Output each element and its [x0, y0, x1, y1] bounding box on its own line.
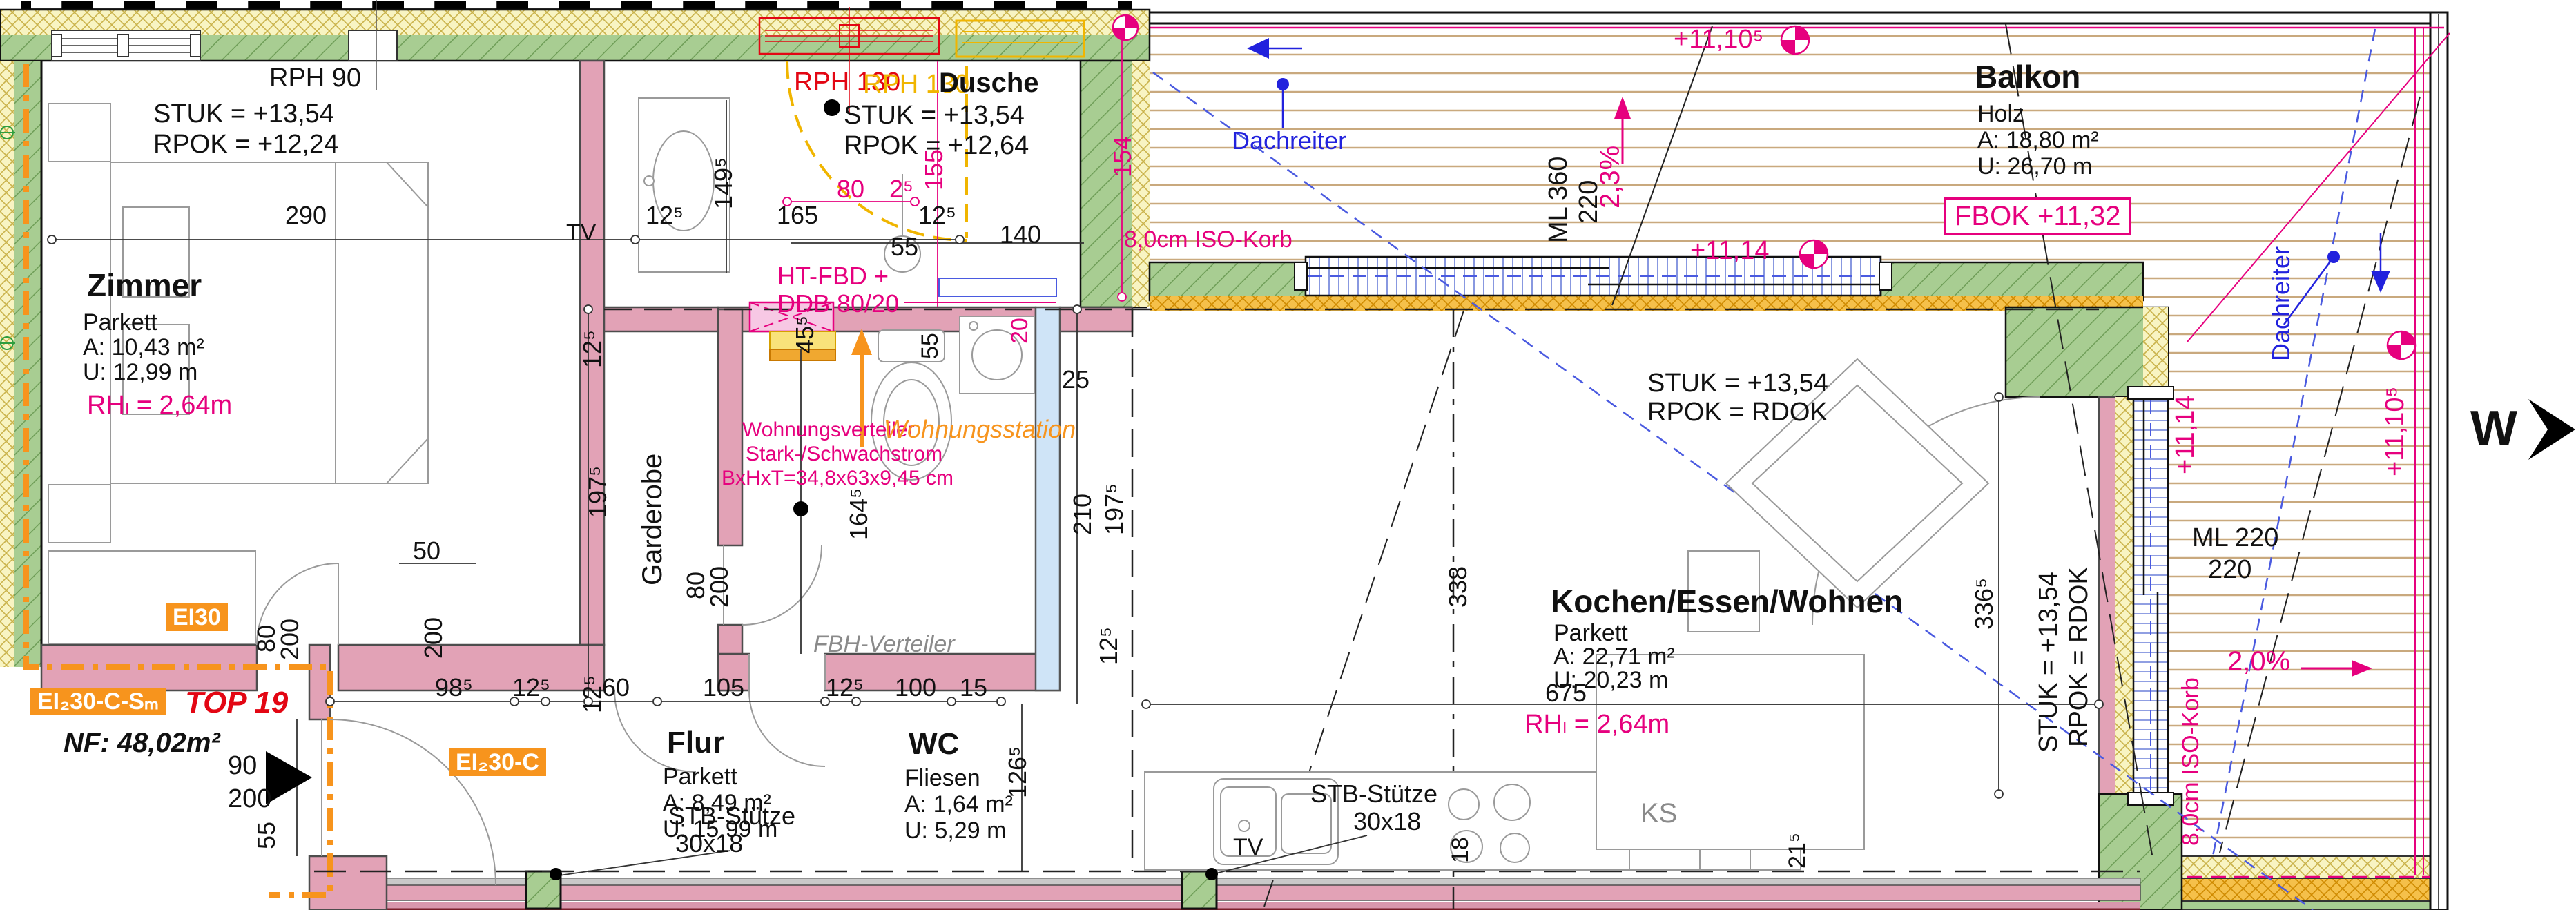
room-zimmer-title: Zimmer [87, 269, 202, 301]
balkon-floor: Holz [1977, 102, 2024, 126]
entry-door-90: 90 [228, 753, 257, 779]
stb-label-1a: STB-Stütze [668, 804, 795, 829]
ml360-line1: ML 360 [1545, 157, 1571, 243]
dachreiter-right: Dachreiter [2269, 246, 2294, 361]
dim-140: 140 [1000, 222, 1041, 247]
dim-126-5: 126⁵ [1005, 746, 1030, 798]
room-wc-title: WC [909, 729, 959, 759]
kochen-area: A: 22,71 m² [1553, 645, 1675, 668]
kochen-rpok-rot: RPOK = RDOK [2066, 567, 2092, 747]
dim-zimmer-290: 290 [285, 203, 327, 228]
level-11-14-right: +11,14 [2172, 396, 2198, 474]
zimmer-perimeter: U: 12,99 m [83, 360, 197, 384]
dim-45-5: 45⁵ [793, 316, 817, 354]
tv-label-wall: TV [566, 221, 596, 244]
zimmer-stuk: STUK = +13,54 [153, 101, 334, 127]
dim-98-5: 98⁵ [435, 675, 473, 700]
dim-200-z: 200 [421, 617, 446, 659]
rph90-label: RPH 90 [269, 65, 361, 91]
kochen-rh: RHₗ = 2,64m [1524, 711, 1669, 737]
dim-20-mag: 20 [1008, 318, 1032, 344]
dim-336-5: 336⁵ [1972, 578, 1997, 630]
room-dusche-title: Dusche [939, 69, 1039, 97]
ml220-line1: ML 220 [2192, 525, 2278, 551]
floor-plan-page: RPH 90 STUK = +13,54 RPOK = +12,24 Zimme… [0, 0, 2576, 910]
dim-197-5-b: 197⁵ [1102, 483, 1127, 535]
wc-perimeter: U: 5,29 m [904, 819, 1006, 842]
ml220-line2: 220 [2208, 556, 2251, 583]
zimmer-rpok: RPOK = +12,24 [153, 131, 338, 157]
entry-55: 55 [254, 822, 279, 849]
dim-80-mag: 80 [837, 177, 864, 202]
iso-korb-right: 8,0cm ISO-Korb [2179, 677, 2202, 846]
entrance-arrow-icon [266, 751, 312, 804]
dim-155: 155 [922, 149, 947, 191]
gard-12-5-bot: 12⁵ [580, 675, 605, 713]
kochen-floor: Parkett [1553, 621, 1628, 645]
dim-15: 15 [960, 675, 987, 700]
dim-60: 60 [602, 675, 630, 700]
wc-area: A: 1,64 m² [904, 793, 1013, 816]
wohnungsverteiler-2: Stark-/Schwachstrom [746, 444, 942, 465]
dim-154: 154 [1110, 136, 1135, 177]
dim-12-5-a: 12⁵ [646, 203, 684, 228]
stb-label-1b: 30x18 [675, 831, 743, 856]
gard-12-5-top: 12⁵ [580, 330, 605, 368]
dim-675: 675 [1545, 681, 1587, 706]
dim-25: 25 [1062, 367, 1090, 392]
dim-149-5: 149⁵ [711, 157, 736, 209]
dim-12-5-d: 12⁵ [512, 675, 550, 700]
dim-21-5: 21⁵ [1785, 833, 1809, 869]
dim-100: 100 [895, 675, 936, 700]
kochen-rpok: RPOK = RDOK [1647, 399, 1828, 425]
dim-55-washer: 55 [918, 333, 942, 359]
slope-2-3: 2,3% [1596, 146, 1624, 209]
zimmer-door-200: 200 [278, 619, 302, 660]
zimmer-area: A: 10,43 m² [83, 336, 204, 359]
kochen-stuk-rot: STUK = +13,54 [2035, 572, 2062, 753]
dim-12-5-b: 12⁵ [918, 203, 956, 228]
dim-18: 18 [1449, 837, 1472, 863]
room-garderobe-title: Garderobe [639, 454, 666, 585]
nf-area: NF: 48,02m² [64, 729, 220, 757]
west-arrow-icon [2528, 399, 2575, 460]
room-kochen-title: Kochen/Essen/Wohnen [1551, 585, 1903, 617]
zimmer-floor: Parkett [83, 311, 157, 334]
stb-label-2b: 30x18 [1353, 809, 1421, 834]
dim-55-dusche: 55 [891, 235, 918, 260]
flur-floor: Parkett [663, 765, 737, 788]
balkon-area: A: 18,80 m² [1977, 128, 2099, 152]
fbh-verteiler-label: FBH-Verteiler [813, 632, 955, 656]
ei230c-badge: EI₂30-C [449, 748, 546, 776]
dachreiter-top: Dachreiter [1232, 128, 1346, 153]
room-balkon-title: Balkon [1975, 61, 2080, 93]
iso-korb-top: 8,0cm ISO-Korb [1124, 228, 1292, 251]
ei30-badge: EI30 [166, 603, 228, 631]
ks-label: KS [1640, 800, 1677, 827]
wohnungsverteiler-3: BxHxT=34,8x63x9,45 cm [722, 468, 953, 489]
fbok-level: FBOK +11,32 [1944, 197, 2131, 235]
wohnungsstation-label: Wohnungsstation [884, 417, 1076, 442]
dim-50: 50 [413, 539, 440, 563]
ht-fbd-label: HT-FBD + [777, 264, 889, 289]
compass-west: W [2470, 404, 2517, 454]
dim-12-5-c: 12⁵ [1096, 627, 1121, 665]
gard-197-5: 197⁵ [585, 466, 610, 518]
kochen-stuk: STUK = +13,54 [1647, 370, 1828, 396]
room-flur-title: Flur [667, 728, 724, 758]
ei230csm-badge: EI₂30-C-Sₘ [30, 688, 166, 715]
tv-label-kitchen: TV [1233, 835, 1263, 859]
stb-label-2a: STB-Stütze [1310, 782, 1437, 806]
dim-2-5-mag: 2⁵ [889, 177, 913, 202]
level-11-10-5-top: +11,10⁵ [1674, 26, 1763, 52]
balkon-perimeter: U: 26,70 m [1977, 155, 2092, 178]
bath-door-200: 200 [707, 566, 732, 608]
ddb-label: DDB 80/20 [777, 291, 899, 316]
dim-12-5-e: 12⁵ [826, 675, 864, 700]
unit-title: TOP 19 [185, 688, 288, 718]
dim-164-5: 164⁵ [846, 488, 871, 540]
dim-105: 105 [703, 675, 744, 700]
zimmer-rh: RHₗ = 2,64m [87, 392, 232, 418]
level-11-10-5-right: +11,10⁵ [2382, 387, 2408, 476]
slope-2-0: 2,0% [2227, 648, 2290, 675]
dim-210: 210 [1070, 494, 1095, 535]
wc-floor: Fliesen [904, 766, 980, 790]
entry-door-200: 200 [228, 786, 271, 812]
dim-338: 338 [1446, 566, 1471, 608]
dusche-stuk: STUK = +13,54 [844, 102, 1025, 128]
level-11-14-top: +11,14 [1690, 238, 1769, 264]
dim-165: 165 [777, 203, 818, 228]
